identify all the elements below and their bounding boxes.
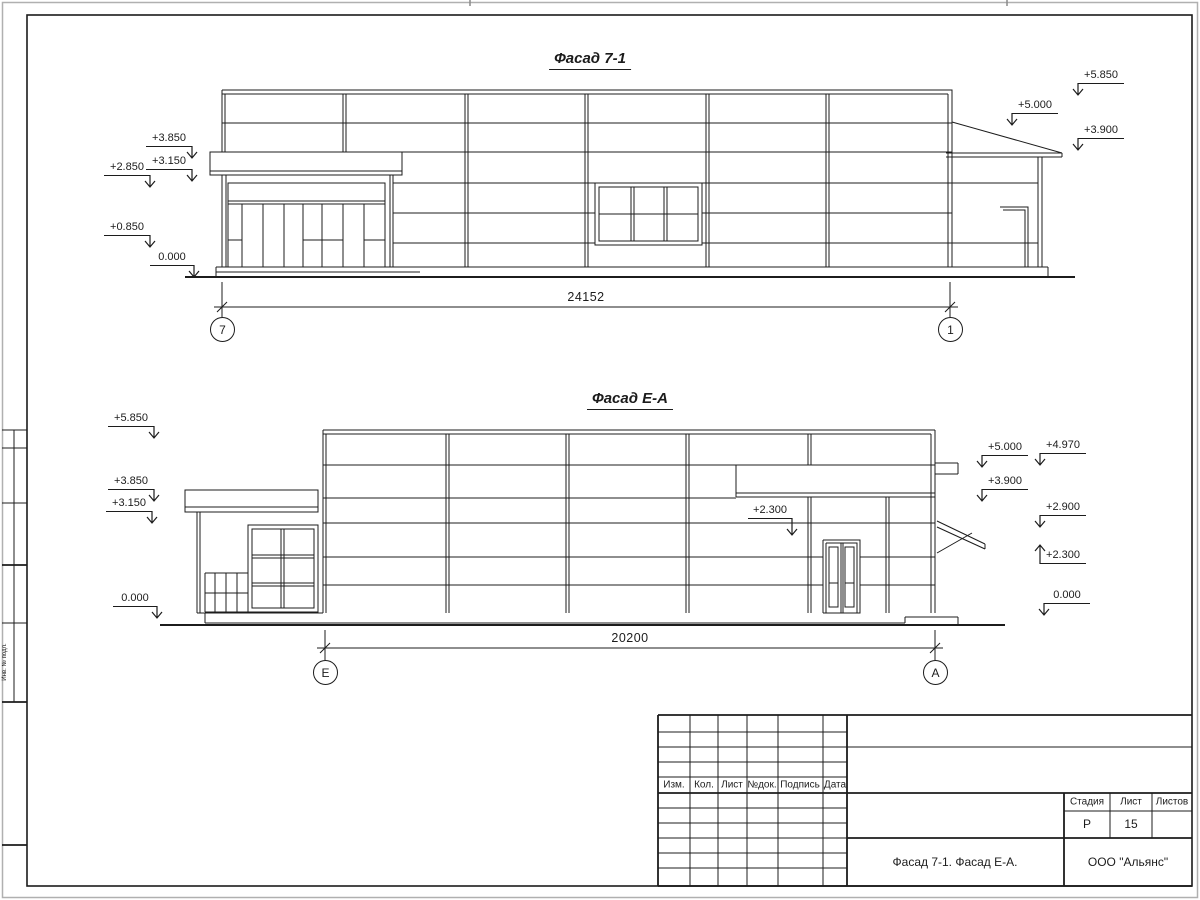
elevation-arrow-icon: [186, 169, 198, 182]
tb-col-list: Лист: [721, 780, 743, 791]
elevation-mark-label: +2.850: [110, 161, 144, 173]
tb-stage-label: Стадия: [1070, 797, 1104, 808]
facade2-building: [185, 430, 985, 625]
axis-bubble-e: Е: [313, 660, 338, 685]
facade1-building: [210, 90, 1062, 277]
elevation-mark-label: +5.850: [114, 412, 148, 424]
elevation-mark: 0.000: [1044, 589, 1090, 604]
elevation-mark: +2.300: [748, 504, 792, 519]
elevation-mark-label: +0.850: [110, 221, 144, 233]
elevation-mark: +3.850: [108, 475, 154, 490]
tb-sheet-label: Лист: [1120, 797, 1142, 808]
elevation-arrow-icon: [151, 606, 163, 619]
elevation-arrow-icon: [1034, 453, 1046, 466]
elevation-mark: +3.150: [146, 155, 192, 170]
axis-label: 1: [947, 323, 954, 337]
elevation-mark: +3.850: [146, 132, 192, 147]
facade1-title: Фасад 7-1: [549, 50, 631, 70]
elevation-mark-label: +3.900: [1084, 124, 1118, 136]
drawing-sheet: Фасад 7-1 Фасад Е-А 24152 20200 7 1 Е А …: [0, 0, 1200, 900]
elevation-mark: +2.300: [1040, 549, 1086, 564]
axis-bubble-7: 7: [210, 317, 235, 342]
tb-drawing-title: Фасад 7-1. Фасад Е-А.: [893, 855, 1018, 869]
elevation-arrow-icon: [786, 518, 798, 536]
elevation-mark-label: +4.970: [1046, 439, 1080, 451]
elevation-mark: +5.850: [108, 412, 154, 427]
elevation-arrow-icon: [1072, 138, 1084, 151]
elevation-mark-label: +2.900: [1046, 501, 1080, 513]
elevation-arrow-icon: [1034, 544, 1046, 564]
elevation-arrow-icon: [188, 265, 200, 278]
elevation-mark-label: +3.150: [112, 497, 146, 509]
elevation-mark-label: +3.850: [114, 475, 148, 487]
elevation-mark-label: +5.850: [1084, 69, 1118, 81]
tb-company: ООО "Альянс": [1088, 855, 1168, 869]
side-stamp-label: Инв. № подл.: [2, 622, 12, 702]
axis-label: 7: [219, 323, 226, 337]
elevation-arrow-icon: [1072, 83, 1084, 96]
elevation-mark-label: +2.300: [753, 504, 787, 516]
elevation-mark-label: +3.850: [152, 132, 186, 144]
elevation-mark: +0.850: [104, 221, 150, 236]
tb-stage-value: Р: [1083, 817, 1091, 831]
elevation-arrow-icon: [146, 511, 158, 524]
elevation-mark-label: +3.150: [152, 155, 186, 167]
elevation-mark: +3.900: [1078, 124, 1124, 139]
elevation-mark: +5.850: [1078, 69, 1124, 84]
elevation-mark: +4.970: [1040, 439, 1086, 454]
axis-bubble-a: А: [923, 660, 948, 685]
tb-col-data: Дата: [824, 780, 846, 791]
tb-sheet-value: 15: [1124, 817, 1137, 831]
elevation-arrow-icon: [1006, 113, 1018, 126]
elevation-mark-label: +3.900: [988, 475, 1022, 487]
axis-bubble-1: 1: [938, 317, 963, 342]
elevation-mark: +2.850: [104, 161, 150, 176]
tb-col-kol: Кол.: [694, 780, 714, 791]
elevation-mark-label: +5.000: [1018, 99, 1052, 111]
elevation-arrow-icon: [148, 426, 160, 439]
elevation-arrow-icon: [976, 489, 988, 502]
elevation-mark: +5.000: [982, 441, 1028, 456]
elevation-mark: +2.900: [1040, 501, 1086, 516]
tb-sheets-label: Листов: [1156, 797, 1189, 808]
tb-col-podpis: Подпись: [780, 780, 820, 791]
facade2-title: Фасад Е-А: [587, 390, 673, 410]
elevation-mark: +3.150: [106, 497, 152, 512]
elevation-mark: 0.000: [150, 251, 194, 266]
elevation-mark: +5.000: [1012, 99, 1058, 114]
elevation-mark-label: 0.000: [158, 251, 186, 263]
elevation-mark-label: 0.000: [1053, 589, 1081, 601]
elevation-mark: +3.900: [982, 475, 1028, 490]
elevation-mark: 0.000: [113, 592, 157, 607]
elevation-arrow-icon: [144, 235, 156, 248]
axis-label: А: [931, 666, 939, 680]
tb-col-ndok: №док.: [747, 780, 776, 791]
elevation-mark-label: 0.000: [121, 592, 149, 604]
elevation-arrow-icon: [1034, 515, 1046, 528]
elevation-arrow-icon: [144, 175, 156, 188]
elevation-mark-label: +5.000: [988, 441, 1022, 453]
facade1-dimension-label: 24152: [567, 290, 604, 304]
elevation-arrow-icon: [1038, 603, 1050, 616]
elevation-mark-label: +2.300: [1046, 549, 1080, 561]
facade2-dimension-label: 20200: [611, 631, 648, 645]
axis-label: Е: [321, 666, 329, 680]
elevation-arrow-icon: [976, 455, 988, 468]
tb-col-izm: Изм.: [663, 780, 684, 791]
